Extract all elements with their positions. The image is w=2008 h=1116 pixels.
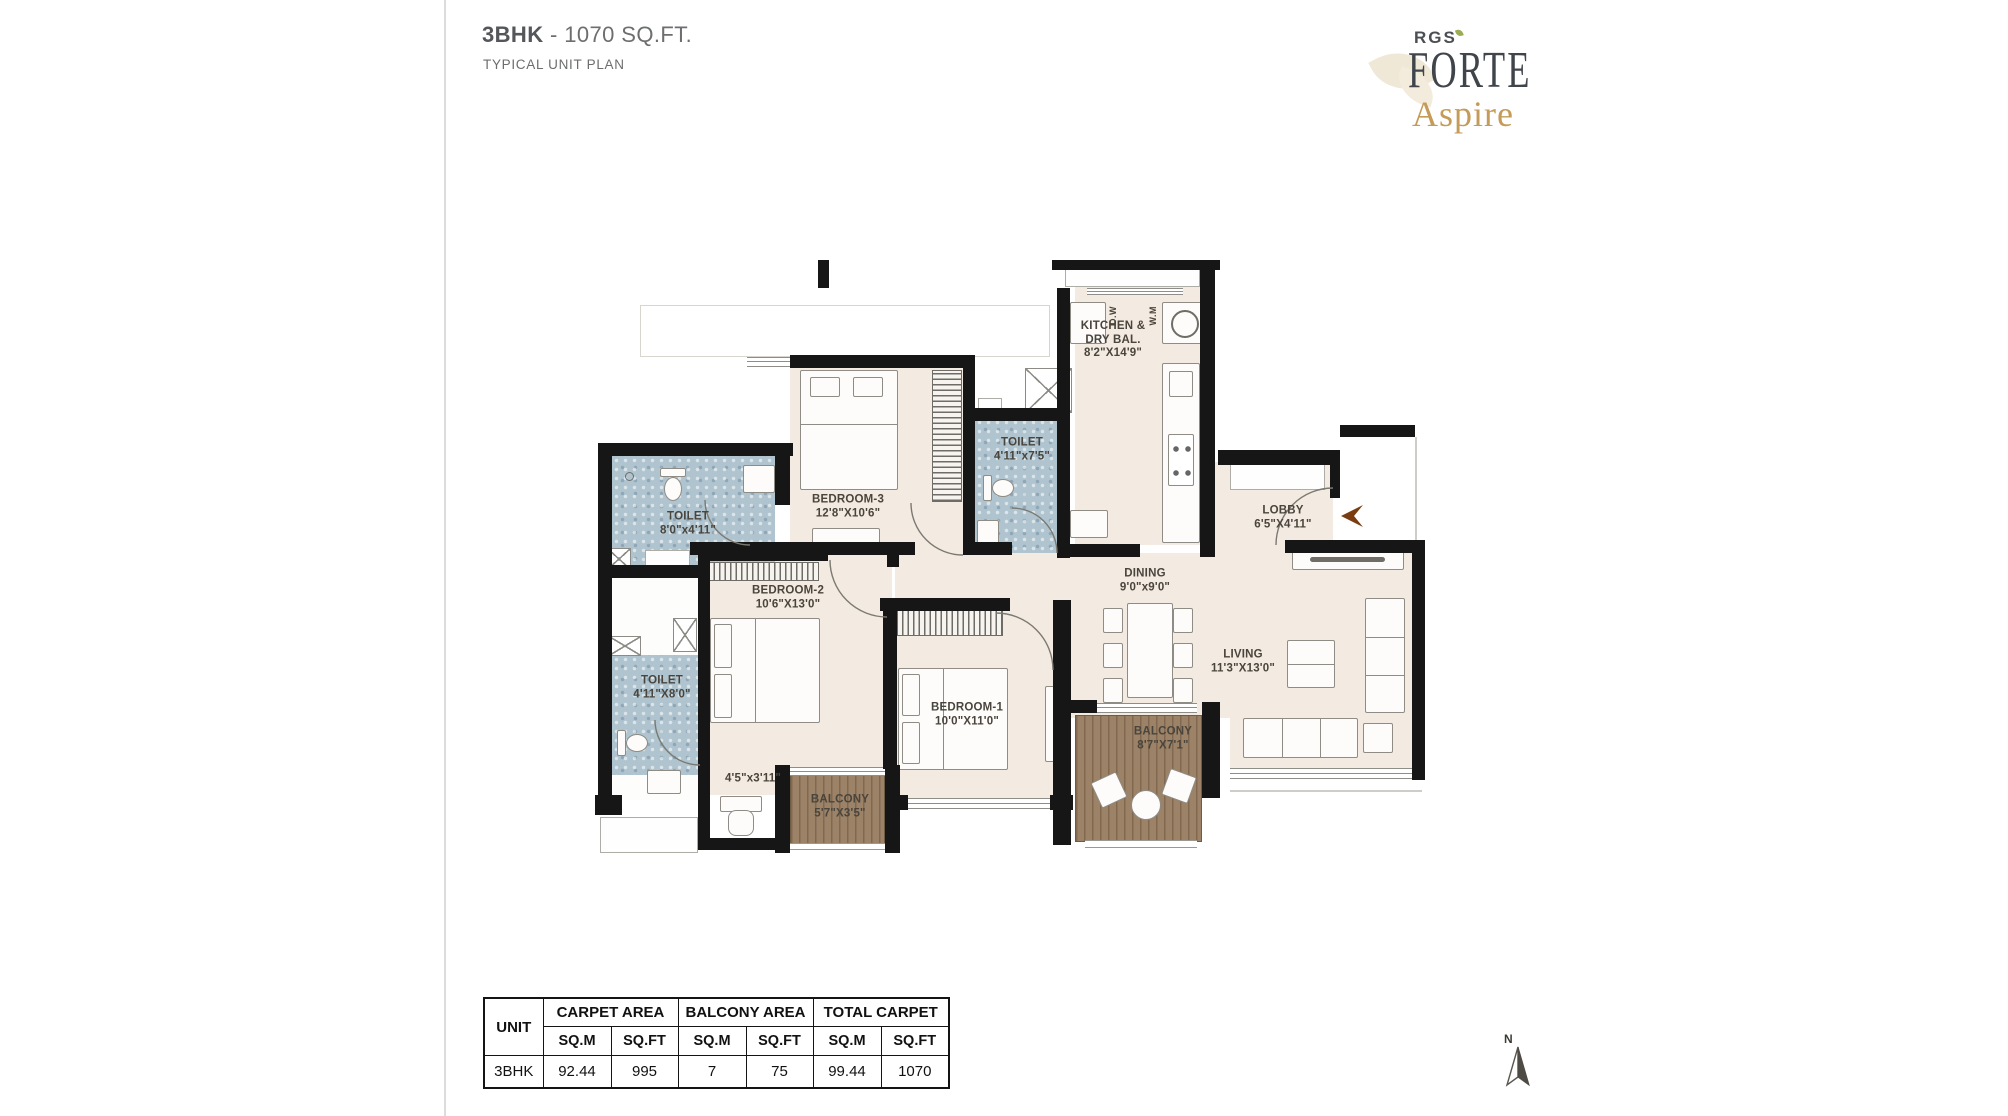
room-name: BALCONY — [1134, 726, 1192, 740]
washing-machine-drum — [1171, 310, 1199, 338]
table-row: 3BHK 92.44 995 7 75 99.44 1070 — [484, 1056, 949, 1089]
room-dimension: 9'0"x9'0" — [1120, 581, 1170, 595]
tv — [1310, 557, 1385, 562]
kitchen-top-ledge — [1065, 268, 1200, 287]
table-subheader: SQ.FT — [881, 1027, 949, 1056]
blanket-line — [755, 619, 756, 722]
table-cell: 995 — [611, 1056, 678, 1089]
room-label-toilet-bed3: TOILET 8'0"x4'11" — [660, 511, 716, 538]
table-cell: 75 — [746, 1056, 813, 1089]
wall-segment — [790, 355, 968, 368]
table-subheader: SQ.M — [543, 1027, 611, 1056]
bottom-left-ledge — [600, 817, 698, 853]
brand-logo: RGS FORTE Aspire — [1388, 20, 1588, 138]
wc-bowl — [992, 479, 1014, 497]
terrace-outline — [640, 305, 1050, 357]
wall-segment — [598, 565, 698, 578]
page-title: 3BHK - 1070 SQ.FT. — [482, 22, 692, 48]
wall-segment — [1052, 260, 1220, 270]
room-dimension: 6'5"X4'11" — [1254, 518, 1311, 532]
wardrobe — [890, 610, 1003, 636]
wc-tank — [660, 468, 686, 477]
balcony-railing — [1085, 840, 1197, 848]
pillow — [714, 674, 732, 718]
exterior-line — [1415, 437, 1417, 540]
table-cell-unit: 3BHK — [484, 1056, 543, 1089]
room-label-bedroom1: BEDROOM-1 10'0"X11'0" — [931, 702, 1003, 729]
washbasin — [743, 465, 775, 493]
wc-bowl — [664, 477, 682, 501]
wall-segment — [1340, 425, 1415, 437]
room-dimension: 8'0"x4'11" — [660, 524, 716, 538]
room-name: BEDROOM-3 — [812, 494, 884, 508]
floor-plan-page: 3BHK - 1070 SQ.FT. TYPICAL UNIT PLAN RGS… — [0, 0, 2008, 1116]
window — [747, 357, 790, 367]
room-dimension: 8'2"X14'9" — [1081, 347, 1145, 361]
room-dimension: 8'7"X7'1" — [1134, 739, 1192, 753]
room-name: KITCHEN & — [1081, 320, 1145, 334]
wall-segment — [598, 443, 612, 815]
logo-aspire: Aspire — [1412, 96, 1514, 132]
wc-tank — [983, 475, 992, 501]
table-cell: 99.44 — [813, 1056, 881, 1089]
room-name: DRY BAL. — [1081, 333, 1145, 347]
dining-chair — [1103, 608, 1123, 633]
sofa — [1243, 718, 1358, 758]
page-subtitle: TYPICAL UNIT PLAN — [483, 57, 625, 72]
wall-segment — [1218, 450, 1330, 465]
washer-box — [647, 770, 681, 794]
area-table: UNIT CARPET AREA BALCONY AREA TOTAL CARP… — [483, 997, 950, 1089]
pillow — [714, 624, 732, 668]
coffee-table — [1287, 640, 1335, 688]
table-cell: 1070 — [881, 1056, 949, 1089]
window — [1230, 768, 1412, 779]
wall-segment — [1285, 540, 1425, 553]
sofa — [1365, 598, 1405, 713]
room-name: TOILET — [633, 675, 690, 689]
wardrobe — [707, 562, 819, 581]
washing-machine-label: W.M — [1148, 306, 1158, 326]
window — [908, 798, 1050, 809]
wall-segment — [1412, 540, 1425, 780]
exterior-line — [1230, 790, 1422, 792]
wall-segment — [698, 555, 710, 850]
wall-segment — [970, 408, 1065, 421]
dining-chair — [1173, 643, 1193, 668]
blanket-line — [801, 424, 897, 425]
dining-chair — [1103, 643, 1123, 668]
table-subheader: SQ.FT — [611, 1027, 678, 1056]
room-dimension: 4'11"X8'0" — [633, 688, 690, 702]
room-label-toilet-bed2: TOILET 4'11"X8'0" — [633, 675, 690, 702]
room-label-lobby: LOBBY 6'5"X4'11" — [1254, 505, 1311, 532]
dining-chair — [1173, 678, 1193, 703]
room-label-bedroom2: BEDROOM-2 10'6"X13'0" — [752, 585, 824, 612]
window — [790, 767, 885, 776]
wardrobe — [932, 370, 962, 502]
wall-segment — [818, 260, 829, 288]
washbasin — [977, 520, 999, 544]
table-subheader: SQ.FT — [746, 1027, 813, 1056]
north-label: N — [1504, 1032, 1513, 1046]
wall-segment — [1202, 702, 1220, 798]
wall-segment — [1053, 600, 1071, 845]
dining-chair — [1103, 678, 1123, 703]
wall-segment — [700, 548, 828, 561]
wall-segment — [1057, 288, 1070, 558]
room-dimension: 5'7"X3'5" — [811, 807, 869, 821]
room-name: LOBBY — [1254, 505, 1311, 519]
room-label-living: LIVING 11'3"X13'0" — [1211, 649, 1275, 676]
room-dimension: 11'3"X13'0" — [1211, 662, 1275, 676]
pillow — [902, 674, 920, 716]
north-arrow-icon — [1502, 1045, 1534, 1089]
room-name: LIVING — [1211, 649, 1275, 663]
wall-segment — [1200, 260, 1215, 557]
lobby-niche — [1230, 464, 1325, 490]
wall-segment — [885, 765, 900, 853]
left-separator-line — [444, 0, 446, 1116]
toilet-bed2-floor — [612, 655, 700, 775]
room-name: DINING — [1120, 568, 1170, 582]
wall-segment — [598, 443, 793, 456]
room-dimension: 10'6"X13'0" — [752, 598, 824, 612]
balcony-railing — [790, 843, 885, 850]
room-label-bedroom3: BEDROOM-3 12'8"X10'6" — [812, 494, 884, 521]
dining-chair — [1173, 608, 1193, 633]
room-name: BEDROOM-1 — [931, 702, 1003, 716]
room-label-dining: DINING 9'0"x9'0" — [1120, 568, 1170, 595]
wc-bowl — [626, 734, 648, 752]
table-header-unit: UNIT — [484, 998, 543, 1056]
stove — [1168, 434, 1194, 486]
unit-area-title: - 1070 SQ.FT. — [550, 22, 692, 47]
window — [1092, 703, 1197, 713]
room-label-passage: 4'5"x3'11" — [725, 772, 781, 786]
room-dimension: 4'11"x7'5" — [994, 450, 1050, 464]
room-name: BALCONY — [811, 794, 869, 808]
wall-segment — [1070, 700, 1097, 713]
wall-segment — [1330, 450, 1340, 498]
room-label-balcony-main: BALCONY 8'7"X7'1" — [1134, 726, 1192, 753]
wall-segment — [963, 355, 975, 555]
table-subheader: SQ.M — [678, 1027, 746, 1056]
pillow — [853, 377, 883, 397]
room-name: TOILET — [660, 511, 716, 525]
table-header-carpet-area: CARPET AREA — [543, 998, 678, 1027]
room-dimension: 4'5"x3'11" — [725, 772, 781, 786]
window — [1087, 288, 1183, 295]
wall-segment — [887, 548, 899, 567]
unit-type-title: 3BHK — [482, 22, 544, 47]
chair — [728, 810, 754, 836]
room-label-kitchen: KITCHEN & DRY BAL. 8'2"X14'9" — [1081, 320, 1145, 361]
north-compass: N — [1498, 1032, 1542, 1094]
table-cell: 92.44 — [543, 1056, 611, 1089]
duct-shaft — [609, 636, 641, 656]
logo-forte: FORTE — [1408, 44, 1532, 99]
wc-tank — [617, 730, 626, 756]
pillow — [810, 377, 840, 397]
table-header-balcony-area: BALCONY AREA — [678, 998, 813, 1027]
refrigerator — [1070, 510, 1108, 538]
room-dimension: 12'8"X10'6" — [812, 507, 884, 521]
room-label-toilet-common: TOILET 4'11"x7'5" — [994, 437, 1050, 464]
shower-drain — [625, 472, 634, 481]
entry-arrow-icon — [1340, 504, 1364, 528]
duct-shaft — [673, 618, 697, 652]
room-name: BEDROOM-2 — [752, 585, 824, 599]
wall-segment — [775, 443, 790, 505]
side-table — [1363, 723, 1393, 753]
kitchen-sink — [1169, 371, 1193, 397]
wall-segment — [883, 607, 897, 769]
table-header-total-carpet: TOTAL CARPET — [813, 998, 949, 1027]
pillow — [902, 722, 920, 764]
dining-table — [1127, 603, 1173, 698]
table-subheader: SQ.M — [813, 1027, 881, 1056]
room-name: TOILET — [994, 437, 1050, 451]
wall-segment — [880, 598, 1010, 611]
table-cell: 7 — [678, 1056, 746, 1089]
room-label-balcony-small: BALCONY 5'7"X3'5" — [811, 794, 869, 821]
room-dimension: 10'0"X11'0" — [931, 715, 1003, 729]
balcony-table — [1131, 790, 1161, 820]
floor-plan: D.W W.M — [595, 258, 1435, 883]
